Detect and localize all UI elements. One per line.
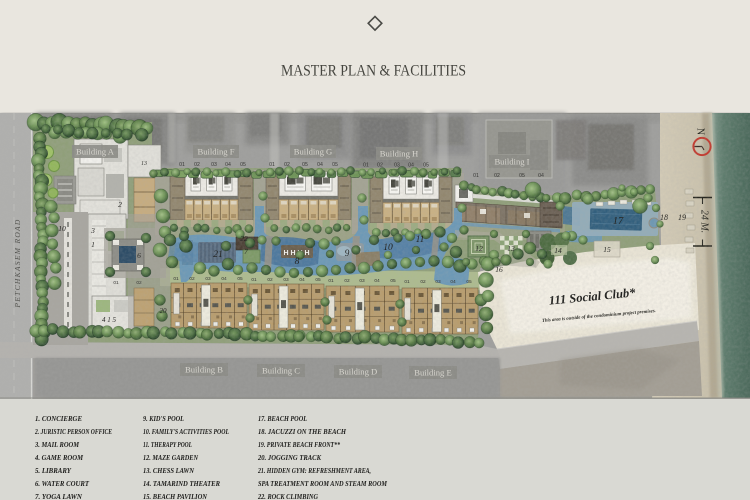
svg-text:6. WATER COURT: 6. WATER COURT — [35, 479, 89, 488]
svg-text:15. BEACH PAVILION: 15. BEACH PAVILION — [143, 492, 208, 500]
svg-text:21. HIDDEN GYM: REFRESHMENT AR: 21. HIDDEN GYM: REFRESHMENT AREA, — [257, 466, 371, 475]
svg-text:MASTER PLAN & FACILITIES: MASTER PLAN & FACILITIES — [281, 62, 466, 79]
svg-text:14. TAMARIND THEATER: 14. TAMARIND THEATER — [143, 479, 220, 488]
svg-text:5. LIBRARY: 5. LIBRARY — [35, 466, 72, 475]
svg-text:22. ROCK CLIMBING: 22. ROCK CLIMBING — [257, 492, 318, 500]
svg-text:1. CONCIERGE: 1. CONCIERGE — [35, 414, 82, 423]
svg-text:4. GAME ROOM: 4. GAME ROOM — [34, 453, 83, 462]
svg-text:19. PRIVATE BEACH FRONT**: 19. PRIVATE BEACH FRONT** — [258, 440, 340, 449]
svg-text:13. CHESS LAWN: 13. CHESS LAWN — [143, 466, 195, 475]
svg-text:20. JOGGING TRACK: 20. JOGGING TRACK — [257, 453, 322, 462]
svg-text:18. JACUZZI ON THE BEACH: 18. JACUZZI ON THE BEACH — [258, 427, 346, 436]
svg-text:7. YOGA LAWN: 7. YOGA LAWN — [35, 492, 83, 500]
svg-text:12. MAZE GARDEN: 12. MAZE GARDEN — [143, 453, 199, 462]
svg-text:17. BEACH POOL: 17. BEACH POOL — [258, 414, 307, 423]
svg-text:10. FAMILY'S ACTIVITIES POOL: 10. FAMILY'S ACTIVITIES POOL — [143, 427, 229, 436]
svg-text:3. MAIL ROOM: 3. MAIL ROOM — [34, 440, 79, 449]
svg-text:2. JURISTIC PERSON OFFICE: 2. JURISTIC PERSON OFFICE — [34, 427, 112, 436]
svg-text:11. THERAPY POOL: 11. THERAPY POOL — [143, 440, 192, 449]
svg-text:9. KID'S POOL: 9. KID'S POOL — [143, 414, 184, 423]
svg-text:SPA TREATMENT ROOM AND STEAM R: SPA TREATMENT ROOM AND STEAM ROOM — [258, 479, 387, 488]
